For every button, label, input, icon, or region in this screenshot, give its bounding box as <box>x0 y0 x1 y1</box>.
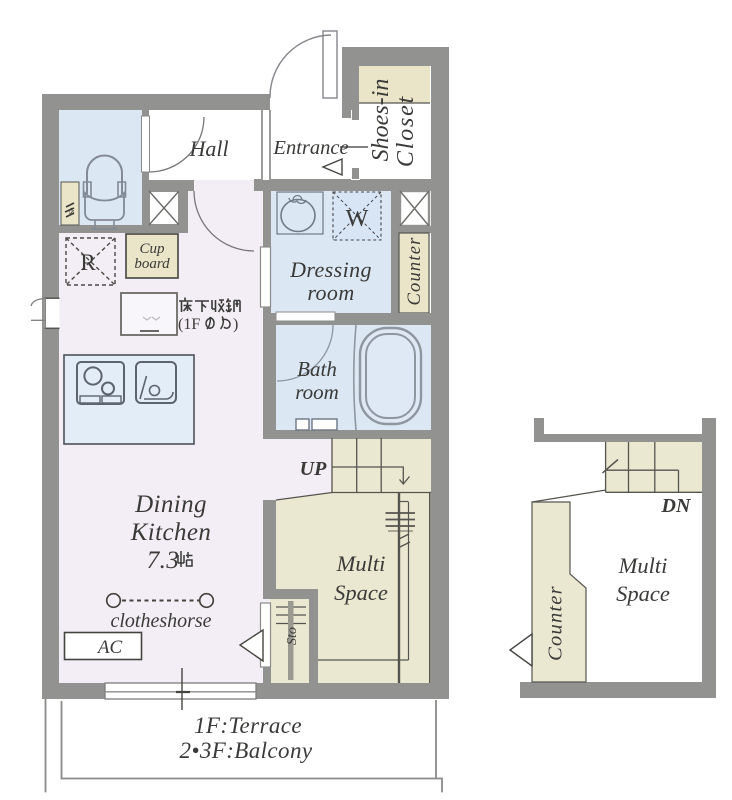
svg-text:(1F: (1F <box>178 316 200 333</box>
svg-text:Multi: Multi <box>336 551 386 576</box>
svg-text:Kitchen: Kitchen <box>130 519 212 546</box>
svg-text:2•3F:Balcony: 2•3F:Balcony <box>180 738 313 763</box>
svg-text:Shoes-in: Shoes-in <box>368 79 394 162</box>
svg-text:Dressing: Dressing <box>289 257 372 282</box>
svg-text:Space: Space <box>616 581 670 606</box>
svg-text:Cup: Cup <box>139 241 165 257</box>
svg-text:UP: UP <box>300 458 327 480</box>
svg-text:clotheshorse: clotheshorse <box>110 610 211 632</box>
svg-text:room: room <box>295 380 339 404</box>
svg-text:W: W <box>346 206 369 232</box>
svg-text:Bath: Bath <box>297 357 337 381</box>
svg-text:7.3: 7.3 <box>147 547 179 574</box>
svg-text:Sh: Sh <box>68 207 76 215</box>
svg-text:Counter: Counter <box>545 585 567 661</box>
svg-text:Dining: Dining <box>134 491 207 518</box>
svg-text:R: R <box>80 250 96 275</box>
svg-text:Multi: Multi <box>618 553 668 578</box>
svg-text:Closet: Closet <box>393 95 419 167</box>
svg-text:Counter: Counter <box>405 236 425 305</box>
svg-text:Space: Space <box>334 580 388 605</box>
svg-text:1F:Terrace: 1F:Terrace <box>194 713 302 738</box>
svg-text:Entrance: Entrance <box>272 137 348 159</box>
svg-text:Hall: Hall <box>188 136 228 161</box>
svg-text:board: board <box>134 256 170 272</box>
svg-text:Sto: Sto <box>285 627 300 645</box>
svg-text:DN: DN <box>661 495 692 517</box>
svg-text:room: room <box>307 280 354 305</box>
svg-text:): ) <box>233 316 238 333</box>
svg-text:AC: AC <box>96 637 123 658</box>
